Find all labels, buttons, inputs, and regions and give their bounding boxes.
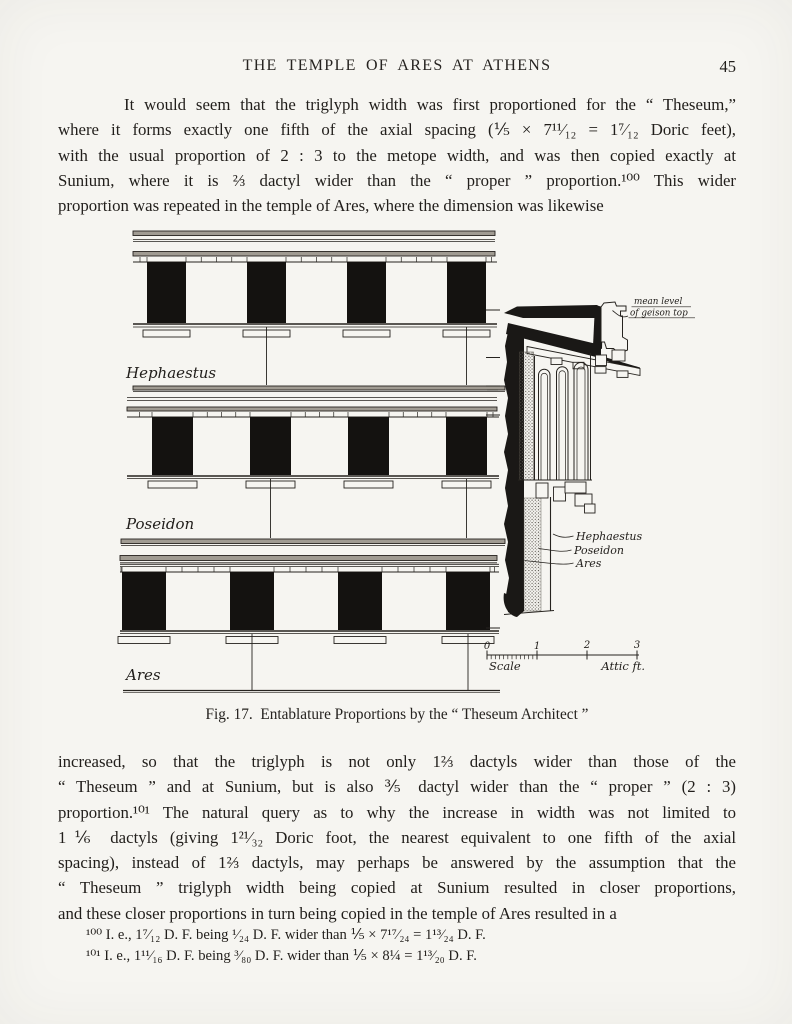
book-page: THE TEMPLE OF ARES AT ATHENS 45 It would… — [0, 0, 792, 1024]
triglyph — [348, 417, 389, 475]
strip-label-hephaestus: Hephaestus — [125, 364, 216, 382]
figure-17-drawing: mean level of geison top Hephaestus Pose… — [95, 225, 740, 700]
triglyph — [338, 572, 382, 630]
mean-level-note-line2: of geison top — [630, 309, 688, 319]
taenia-step — [536, 483, 548, 498]
text-line: It would seem that the triglyph width wa… — [58, 92, 736, 117]
poseidon-leader — [539, 549, 572, 552]
geison-black-beak — [504, 305, 603, 318]
page-number: 45 — [720, 57, 737, 77]
regula — [343, 330, 390, 337]
triglyph-channel — [574, 363, 588, 480]
text-line: where it forms exactly one fifth of the … — [58, 117, 736, 142]
scale-bar: 0 1 2 3 Scale Attic ft. — [484, 640, 645, 673]
text-line: and these closer proportions in turn bei… — [58, 901, 736, 926]
triglyph — [152, 417, 193, 475]
triglyph-channel-inner — [559, 371, 566, 480]
triglyph-channel — [557, 367, 569, 480]
wall-stipple-band — [524, 498, 541, 611]
text-line: with the usual proportion of 2 : 3 to th… — [58, 143, 736, 168]
frieze-edge-line — [535, 353, 591, 480]
text-line: spacing), instead of 1⅔ dactyls, may per… — [58, 850, 736, 875]
architrave-bottom-band — [133, 386, 505, 390]
profile-gutta-block — [612, 350, 625, 361]
text-line: “ Theseum ” triglyph width being copied … — [58, 875, 736, 900]
architrave-bottom-band — [121, 539, 505, 544]
triglyph — [447, 262, 486, 323]
taenia-step — [565, 482, 586, 493]
page-header: THE TEMPLE OF ARES AT ATHENS 45 — [58, 57, 736, 79]
cornice-section: mean level of geison top Hephaestus Pose… — [486, 297, 695, 628]
mutule-gutta — [617, 371, 628, 378]
cornice-band — [133, 231, 495, 236]
entablature-strips — [118, 231, 505, 692]
section-label-ares: Ares — [575, 557, 602, 570]
strip-label-ares: Ares — [124, 666, 161, 684]
triglyph — [230, 572, 274, 630]
triglyph — [122, 572, 166, 630]
cornice-band — [133, 252, 495, 257]
text-line: Sunium, where it is ⅔ dactyl wider than … — [58, 168, 736, 193]
triglyph-channel-inner — [577, 367, 585, 480]
mutule-gutta — [551, 358, 562, 365]
mean-level-note-line1: mean level — [634, 297, 682, 307]
cornice-band — [127, 407, 497, 411]
profile-gutta-block — [596, 355, 607, 366]
frieze-stipple-band — [520, 352, 534, 480]
scale-label: Scale — [489, 659, 521, 673]
section-label-poseidon: Poseidon — [573, 544, 624, 557]
triglyph — [347, 262, 386, 323]
taenia-step — [554, 487, 566, 501]
triglyph — [446, 417, 487, 475]
mutule-gutta — [595, 367, 606, 374]
scale-tick-1: 1 — [534, 641, 540, 652]
text-line: 1⅙ dactyls (giving 1²¹⁄₃₂ Doric foot, th… — [58, 825, 736, 850]
running-head: THE TEMPLE OF ARES AT ATHENS — [58, 57, 736, 75]
regula — [118, 637, 170, 644]
hephaestus-leader — [553, 534, 574, 537]
text-line: increased, so that the triglyph is not o… — [58, 749, 736, 774]
section-label-hephaestus: Hephaestus — [575, 530, 642, 543]
regula — [334, 637, 386, 644]
scale-unit-label: Attic ft. — [600, 659, 645, 673]
taenia-step — [585, 504, 596, 513]
strip-label-poseidon: Poseidon — [125, 515, 194, 533]
triglyph — [446, 572, 490, 630]
figure-caption: Fig. 17. Entablature Proportions by the … — [58, 706, 736, 724]
text-line: “ Theseum ” and at Sunium, but is also ⅗… — [58, 774, 736, 799]
geison-profile-outline — [601, 302, 628, 354]
cornice-band — [120, 556, 497, 561]
scale-tick-0: 0 — [484, 641, 491, 652]
footnote-100: ¹⁰⁰ I. e., 1⁷⁄₁₂ D. F. being ¹⁄₂₄ D. F. … — [58, 925, 736, 946]
regula — [148, 481, 197, 488]
triglyph — [250, 417, 291, 475]
text-line: proportion.¹⁰¹ The natural query as to w… — [58, 800, 736, 825]
entablature-strip — [118, 556, 500, 693]
regula — [344, 481, 393, 488]
footnotes: ¹⁰⁰ I. e., 1⁷⁄₁₂ D. F. being ¹⁄₂₄ D. F. … — [58, 925, 736, 966]
scale-tick-2: 2 — [583, 640, 590, 651]
paragraph-1: It would seem that the triglyph width wa… — [58, 92, 736, 218]
triglyph — [247, 262, 286, 323]
triglyph — [147, 262, 186, 323]
footnote-101: ¹⁰¹ I. e., 1¹¹⁄₁₆ D. F. being ³⁄₈₀ D. F.… — [58, 946, 736, 967]
triglyph-channel-inner — [541, 373, 548, 480]
triglyph-channel — [539, 369, 551, 480]
regula — [143, 330, 190, 337]
scale-tick-3: 3 — [634, 640, 640, 651]
paragraph-2: increased, so that the triglyph is not o… — [58, 749, 736, 926]
text-line: proportion was repeated in the temple of… — [58, 193, 736, 218]
